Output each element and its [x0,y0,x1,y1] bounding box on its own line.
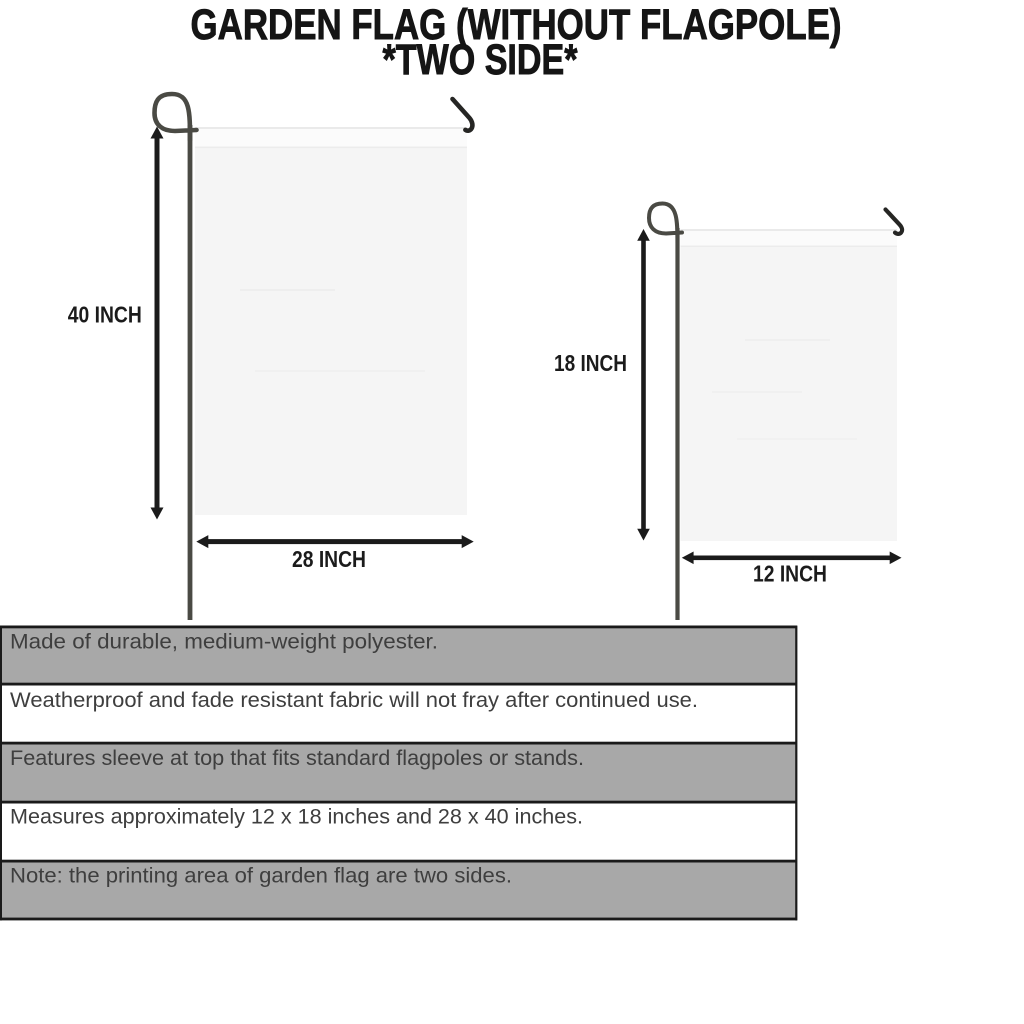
svg-text:Features sleeve at top that fi: Features sleeve at top that fits standar… [10,746,584,770]
svg-text:28 INCH: 28 INCH [292,546,366,572]
svg-text:Weatherproof and fade resistan: Weatherproof and fade resistant fabric w… [10,688,698,712]
svg-text:Made of durable, medium-weight: Made of durable, medium-weight polyester… [10,630,438,654]
svg-text:40 INCH: 40 INCH [68,302,142,328]
svg-text:18 INCH: 18 INCH [554,350,627,376]
svg-text:Note: the printing area of gar: Note: the printing area of garden flag a… [10,864,512,888]
svg-text:12 INCH: 12 INCH [753,561,827,587]
svg-text:*TWO SIDE*: *TWO SIDE* [383,36,578,84]
svg-text:Measures approximately 12 x 18: Measures approximately 12 x 18 inches an… [10,805,583,829]
